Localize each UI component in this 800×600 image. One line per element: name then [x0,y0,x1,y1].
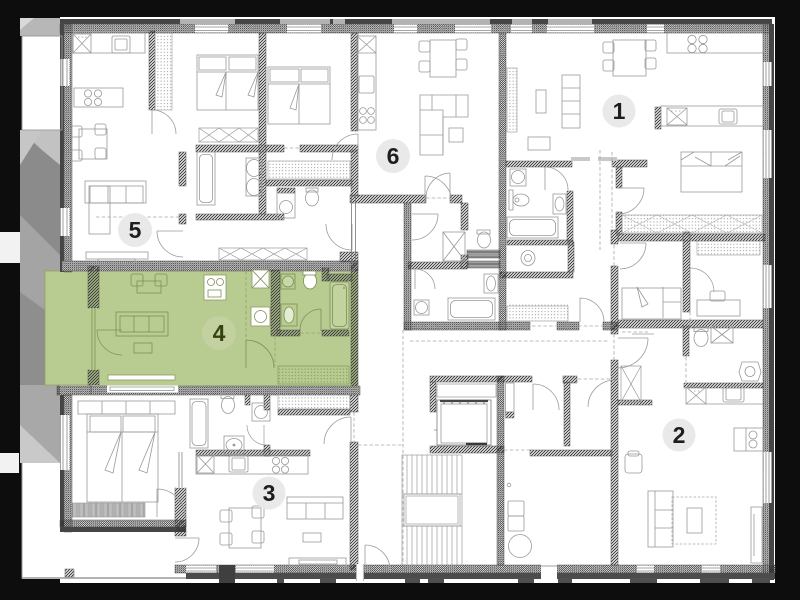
svg-text:3: 3 [263,480,276,506]
svg-text:5: 5 [129,217,142,243]
svg-text:1: 1 [613,98,626,124]
svg-text:6: 6 [387,143,400,169]
svg-text:2: 2 [673,422,686,448]
svg-text:4: 4 [213,320,226,346]
